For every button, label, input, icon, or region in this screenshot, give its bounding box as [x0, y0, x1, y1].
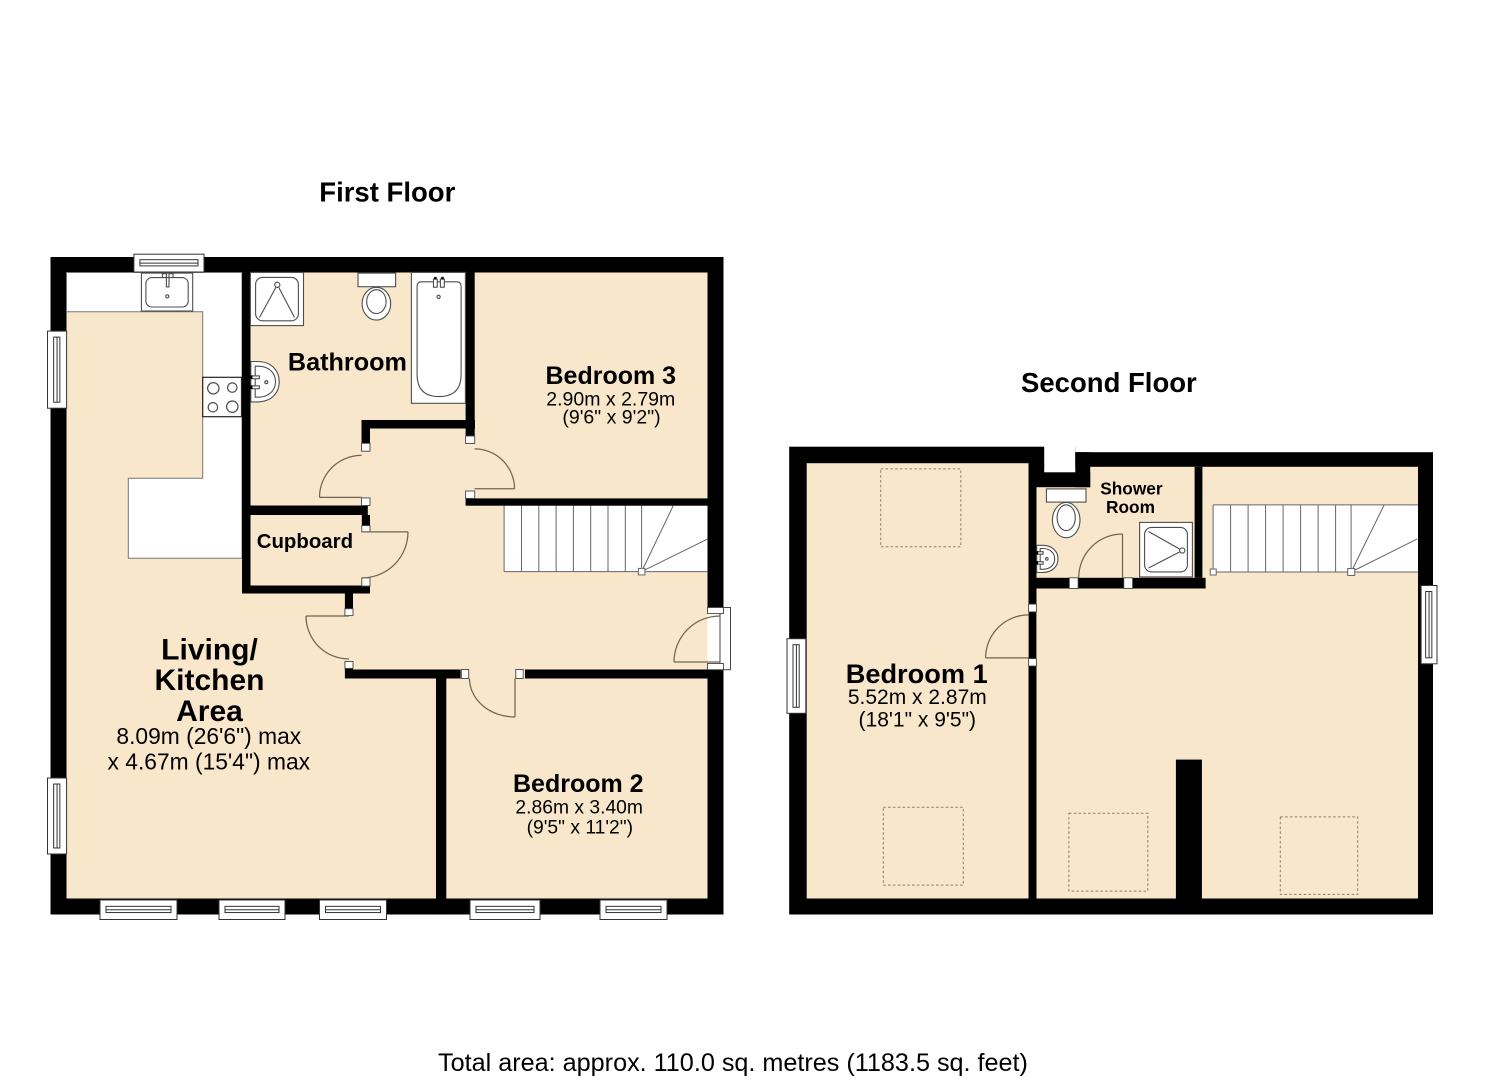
svg-text:Bathroom: Bathroom: [288, 349, 407, 377]
svg-text:x 4.67m (15'4") max: x 4.67m (15'4") max: [108, 748, 311, 774]
svg-text:First Floor: First Floor: [319, 177, 455, 208]
svg-text:Living/: Living/: [161, 633, 258, 666]
svg-text:8.09m (26'6") max: 8.09m (26'6") max: [116, 723, 301, 749]
svg-text:Kitchen: Kitchen: [154, 664, 264, 697]
svg-text:(18'1" x 9'5"): (18'1" x 9'5"): [859, 709, 976, 732]
svg-text:Shower: Shower: [1100, 479, 1163, 499]
svg-text:Room: Room: [1106, 497, 1155, 517]
svg-text:2.86m x 3.40m: 2.86m x 3.40m: [515, 797, 643, 818]
svg-text:Second Floor: Second Floor: [1021, 367, 1197, 398]
svg-text:Bedroom 1: Bedroom 1: [846, 658, 988, 689]
svg-text:Cupboard: Cupboard: [257, 531, 353, 553]
svg-text:(9'5" x 11'2"): (9'5" x 11'2"): [527, 817, 633, 838]
svg-text:Total area: approx. 110.0 sq.: Total area: approx. 110.0 sq. metres (11…: [438, 1049, 1028, 1077]
svg-text:Bedroom 3: Bedroom 3: [546, 362, 677, 390]
svg-text:Bedroom 2: Bedroom 2: [513, 770, 644, 798]
svg-text:(9'6" x 9'2"): (9'6" x 9'2"): [562, 407, 660, 429]
svg-text:5.52m x 2.87m: 5.52m x 2.87m: [848, 686, 987, 709]
